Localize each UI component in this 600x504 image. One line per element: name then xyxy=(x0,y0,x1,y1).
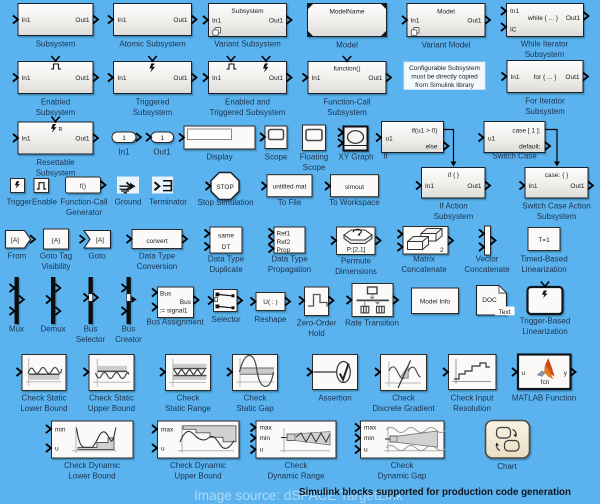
svg-text:function(): function() xyxy=(333,66,360,73)
svg-text:IC: IC xyxy=(510,27,517,34)
svg-text:Bus: Bus xyxy=(180,299,192,306)
svg-text:Ground: Ground xyxy=(115,198,142,207)
svg-text:In1: In1 xyxy=(425,183,434,190)
svg-text:Concatenate: Concatenate xyxy=(401,265,447,274)
svg-text:Function-Call: Function-Call xyxy=(60,198,107,207)
svg-text:Floating: Floating xyxy=(300,153,328,162)
svg-text:Atomic Subsystem: Atomic Subsystem xyxy=(119,40,186,49)
svg-text:Bus: Bus xyxy=(160,291,172,298)
svg-text:Subsystem: Subsystem xyxy=(231,8,263,15)
svg-text:Subsystem: Subsystem xyxy=(36,108,76,117)
svg-text:Simulink blocks supported for: Simulink blocks supported for production… xyxy=(299,487,571,498)
svg-text:case: { }: case: { } xyxy=(545,172,569,179)
svg-text:Check: Check xyxy=(392,394,416,403)
svg-text:Subsystem: Subsystem xyxy=(525,50,565,59)
svg-text:Goto: Goto xyxy=(88,252,106,261)
svg-text:Vector: Vector xyxy=(476,255,499,264)
svg-text:case [ 1 ]:: case [ 1 ]: xyxy=(512,128,540,135)
svg-text:Switch Case Action: Switch Case Action xyxy=(522,202,590,211)
svg-text:Enable: Enable xyxy=(32,198,57,207)
svg-text:Permute: Permute xyxy=(341,257,372,266)
svg-text:Lower Bound: Lower Bound xyxy=(68,472,115,481)
svg-text:Display: Display xyxy=(206,153,232,162)
svg-text:In1: In1 xyxy=(22,17,31,24)
svg-text:[A]: [A] xyxy=(11,237,19,244)
svg-text:Terminator: Terminator xyxy=(149,198,187,207)
svg-text:Bus: Bus xyxy=(122,325,136,334)
svg-text:Prop: Prop xyxy=(277,247,291,254)
svg-text:While Iterator: While Iterator xyxy=(521,40,569,49)
svg-text:In1: In1 xyxy=(22,136,31,143)
svg-text:Upper Bound: Upper Bound xyxy=(88,404,135,413)
svg-text:Upper Bound: Upper Bound xyxy=(174,472,221,481)
svg-text:Matrix: Matrix xyxy=(413,255,435,264)
svg-text:f(): f() xyxy=(80,183,86,190)
svg-text:Check: Check xyxy=(285,461,309,470)
svg-text:From: From xyxy=(8,252,27,261)
svg-text:Out1: Out1 xyxy=(269,18,283,25)
svg-text:Data Type: Data Type xyxy=(139,252,176,261)
svg-text:Lower Bound: Lower Bound xyxy=(20,404,67,413)
svg-text:Bus Assignment: Bus Assignment xyxy=(146,318,204,327)
svg-text:To File: To File xyxy=(278,198,302,207)
svg-text:Enabled and: Enabled and xyxy=(225,98,270,107)
svg-text:Chart: Chart xyxy=(497,462,517,471)
svg-text:U( : ): U( : ) xyxy=(263,299,277,306)
svg-text:In1: In1 xyxy=(312,75,321,82)
svg-text:Resettable: Resettable xyxy=(36,158,75,167)
svg-text:Model Info: Model Info xyxy=(420,299,451,306)
svg-text:Duplicate: Duplicate xyxy=(209,265,243,274)
svg-text:Mux: Mux xyxy=(9,325,24,334)
svg-text:In1: In1 xyxy=(411,18,420,25)
svg-text:Subsystem: Subsystem xyxy=(36,40,76,49)
svg-text:Zero-Order: Zero-Order xyxy=(297,319,337,328)
svg-text:Rate Transition: Rate Transition xyxy=(345,319,399,328)
svg-text:T=1: T=1 xyxy=(538,237,550,244)
svg-text::= signal1: := signal1 xyxy=(160,308,188,315)
svg-text:untitled.mat: untitled.mat xyxy=(273,183,307,190)
svg-text:u1: u1 xyxy=(386,136,394,143)
svg-text:Assertion: Assertion xyxy=(318,394,351,403)
svg-text:else: else xyxy=(426,144,438,151)
svg-text:u: u xyxy=(364,447,368,454)
svg-text:Dimensions: Dimensions xyxy=(335,267,377,276)
svg-text:Check: Check xyxy=(391,461,415,470)
svg-text:Check Dynamic: Check Dynamic xyxy=(64,461,120,470)
svg-text:P:[2,1]: P:[2,1] xyxy=(347,247,366,254)
svg-text:For Iterator: For Iterator xyxy=(525,97,565,106)
svg-text:1: 1 xyxy=(122,135,126,142)
svg-text:Concatenate: Concatenate xyxy=(464,265,510,274)
svg-text:u: u xyxy=(55,446,59,453)
svg-text:Out1: Out1 xyxy=(173,75,187,82)
svg-text:Variant Subsystem: Variant Subsystem xyxy=(214,40,281,49)
svg-text:min: min xyxy=(364,435,375,442)
svg-text:simout: simout xyxy=(345,184,364,191)
svg-text:Propagation: Propagation xyxy=(268,265,311,274)
svg-text:If Action: If Action xyxy=(439,202,467,211)
svg-text:Selector: Selector xyxy=(76,335,106,344)
svg-text:[A]: [A] xyxy=(96,237,104,244)
svg-text:Subsystem: Subsystem xyxy=(327,108,367,117)
svg-text:Text: Text xyxy=(499,309,511,316)
svg-text:convert: convert xyxy=(146,238,168,245)
svg-text:max: max xyxy=(364,425,377,432)
svg-text:In1: In1 xyxy=(22,75,31,82)
svg-text:Check: Check xyxy=(177,394,201,403)
svg-text:DOC: DOC xyxy=(482,297,497,304)
svg-text:In1: In1 xyxy=(118,17,127,24)
svg-text:Enabled: Enabled xyxy=(41,98,70,107)
svg-text:Function-Call: Function-Call xyxy=(323,98,370,107)
svg-text:Out1: Out1 xyxy=(75,75,89,82)
svg-text:default:: default: xyxy=(519,144,541,151)
svg-text:Demux: Demux xyxy=(40,325,65,334)
svg-text:Subsystem: Subsystem xyxy=(36,169,76,178)
svg-text:fcn: fcn xyxy=(541,379,550,386)
svg-text:{A}: {A} xyxy=(52,238,62,245)
svg-text:To Workspace: To Workspace xyxy=(329,198,380,207)
svg-text:Selector: Selector xyxy=(211,315,241,324)
svg-text:Out1: Out1 xyxy=(368,75,382,82)
svg-text:for { ... }: for { ... } xyxy=(534,74,558,81)
svg-text:Out1: Out1 xyxy=(570,183,584,190)
svg-text:Reshape: Reshape xyxy=(254,315,287,324)
svg-text:Out1: Out1 xyxy=(75,136,89,143)
svg-text:Static Range: Static Range xyxy=(165,404,211,413)
svg-text:Scope: Scope xyxy=(265,153,288,162)
svg-text:min: min xyxy=(260,435,271,442)
svg-text:Subsystem: Subsystem xyxy=(133,108,173,117)
svg-text:Creator: Creator xyxy=(115,335,142,344)
svg-text:Data Type: Data Type xyxy=(271,255,308,264)
svg-text:Check Static: Check Static xyxy=(22,394,67,403)
svg-text:u: u xyxy=(260,447,264,454)
svg-text:Out1: Out1 xyxy=(153,148,171,157)
svg-text:In1: In1 xyxy=(511,74,520,81)
svg-text:In1: In1 xyxy=(212,75,221,82)
svg-text:must be directly copied: must be directly copied xyxy=(411,74,478,81)
svg-text:Data Type: Data Type xyxy=(208,255,245,264)
svg-text:XY Graph: XY Graph xyxy=(339,153,374,162)
svg-text:Conversion: Conversion xyxy=(137,262,177,271)
svg-text:If: If xyxy=(383,152,388,161)
svg-text:Triggered Subsystem: Triggered Subsystem xyxy=(210,108,286,117)
svg-text:while { ... }: while { ... } xyxy=(527,15,559,22)
svg-text:from Simulink library: from Simulink library xyxy=(415,82,475,89)
svg-text:ModelName: ModelName xyxy=(329,9,364,16)
svg-text:Static Gap: Static Gap xyxy=(236,404,274,413)
svg-text:Trigger: Trigger xyxy=(6,198,31,207)
svg-text:Stop Simulation: Stop Simulation xyxy=(197,198,253,207)
svg-text:R: R xyxy=(59,127,63,133)
svg-text:MATLAB Function: MATLAB Function xyxy=(512,394,576,403)
svg-text:Out1: Out1 xyxy=(467,18,481,25)
svg-text:2: 2 xyxy=(440,247,444,254)
svg-text:Check: Check xyxy=(244,394,268,403)
svg-text:Subsystem: Subsystem xyxy=(537,212,577,221)
svg-text:Generator: Generator xyxy=(66,208,102,217)
svg-text:In1: In1 xyxy=(212,18,221,25)
svg-text:In1: In1 xyxy=(118,75,127,82)
svg-text:if(u1 > 0): if(u1 > 0) xyxy=(412,128,438,135)
svg-text:Hold: Hold xyxy=(308,329,324,338)
svg-text:STOP: STOP xyxy=(216,184,234,191)
svg-text:Out1: Out1 xyxy=(565,74,579,81)
svg-text:Model: Model xyxy=(437,9,455,16)
svg-text:Resolution: Resolution xyxy=(453,404,491,413)
svg-text:Out1: Out1 xyxy=(269,75,283,82)
svg-text:max: max xyxy=(161,427,174,434)
svg-text:Ref2: Ref2 xyxy=(277,239,291,246)
svg-text:1: 1 xyxy=(160,135,164,142)
svg-text:Ref1: Ref1 xyxy=(277,231,291,238)
svg-text:In1: In1 xyxy=(118,148,130,157)
svg-text:Discrete Gradient: Discrete Gradient xyxy=(372,404,435,413)
svg-text:Dynamic Gap: Dynamic Gap xyxy=(378,472,427,481)
svg-text:u: u xyxy=(522,370,526,377)
svg-text:Switch Case: Switch Case xyxy=(492,152,537,161)
svg-text:Scope: Scope xyxy=(303,163,326,172)
svg-text:Dynamic Range: Dynamic Range xyxy=(268,472,325,481)
svg-text:u: u xyxy=(161,446,165,453)
svg-text:Goto Tag: Goto Tag xyxy=(40,252,72,261)
svg-text:same: same xyxy=(218,233,234,240)
svg-text:Bus: Bus xyxy=(84,325,98,334)
svg-text:In1: In1 xyxy=(510,8,519,15)
svg-text:Check Static: Check Static xyxy=(89,394,134,403)
svg-text:Linearization: Linearization xyxy=(522,327,567,336)
svg-text:In1: In1 xyxy=(529,183,538,190)
svg-text:u1: u1 xyxy=(488,136,496,143)
svg-text:Visibility: Visibility xyxy=(42,262,71,271)
svg-text:Triggered: Triggered xyxy=(136,98,170,107)
svg-text:Linearization: Linearization xyxy=(521,265,566,274)
svg-text:Check Dynamic: Check Dynamic xyxy=(170,461,226,470)
svg-text:Variant Model: Variant Model xyxy=(422,41,471,50)
svg-text:Timed-Based: Timed-Based xyxy=(520,255,567,264)
svg-text:Configurable Subsystem: Configurable Subsystem xyxy=(409,65,480,72)
svg-text:Out1: Out1 xyxy=(75,17,89,24)
svg-text:if { }: if { } xyxy=(448,172,460,179)
svg-text:Subsystem: Subsystem xyxy=(525,107,565,116)
svg-text:min: min xyxy=(55,427,66,434)
svg-text:Out1: Out1 xyxy=(467,183,481,190)
svg-text:Model: Model xyxy=(336,41,358,50)
svg-text:DT: DT xyxy=(222,244,231,251)
svg-text:Out1: Out1 xyxy=(173,17,187,24)
svg-text:Trigger-Based: Trigger-Based xyxy=(520,317,570,326)
svg-text:Out1: Out1 xyxy=(566,15,580,22)
svg-text:Subsystem: Subsystem xyxy=(434,212,474,221)
svg-text:max: max xyxy=(260,425,273,432)
svg-text:Check Input: Check Input xyxy=(451,394,494,403)
